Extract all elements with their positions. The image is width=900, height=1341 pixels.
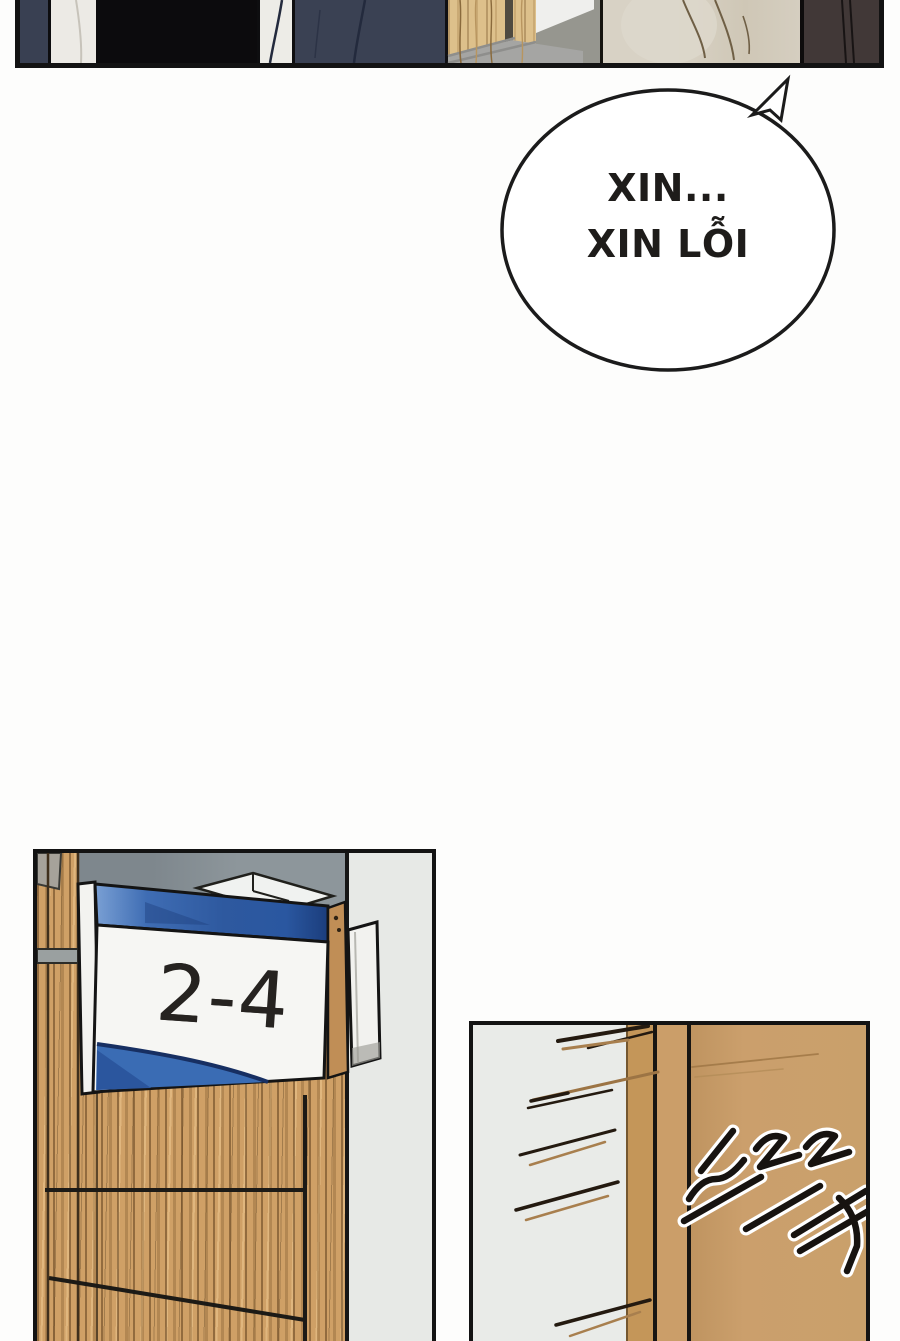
sign-panel-art bbox=[37, 853, 432, 1341]
wood-seam-diagonal bbox=[49, 1278, 305, 1320]
beam-gray-band bbox=[37, 949, 78, 963]
speech-bubble-tail bbox=[752, 79, 788, 120]
door-panel: 드르륵 bbox=[469, 1021, 870, 1341]
speech-bubble-text: XIN... XIN LỖI bbox=[528, 160, 808, 272]
sfx-deureureuk: 드르륵 bbox=[673, 1120, 863, 1300]
top-panel-detail-lines bbox=[20, 0, 879, 63]
classroom-sign-panel: 2-4 bbox=[33, 849, 436, 1341]
bubble-line-1: XIN... bbox=[528, 160, 808, 216]
classroom-number: 2-4 bbox=[145, 947, 301, 1049]
speech-bubble: XIN... XIN LỖI bbox=[488, 68, 852, 380]
comic-page: XIN... XIN LỖI bbox=[0, 0, 900, 1341]
top-panel bbox=[15, 0, 884, 68]
bubble-line-2: XIN LỖI bbox=[528, 216, 808, 272]
sfx-strokes bbox=[673, 1120, 863, 1300]
